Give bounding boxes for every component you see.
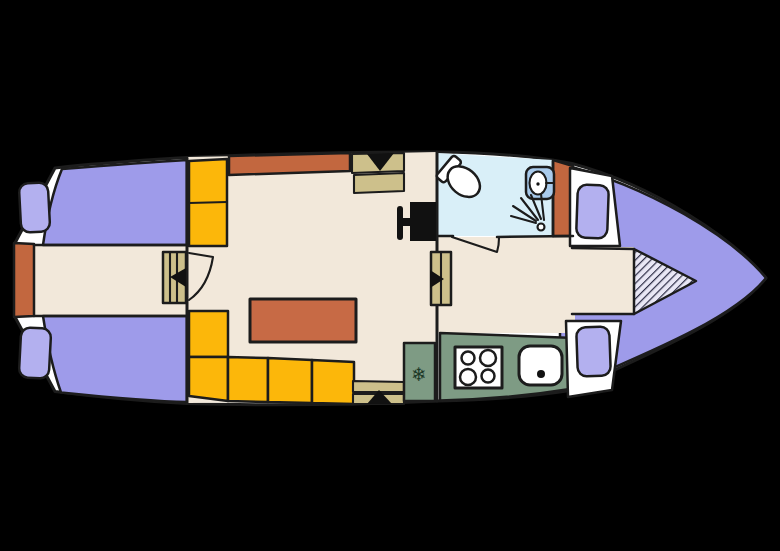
floor-plan-canvas: ❄: [0, 0, 780, 551]
fridge: ❄: [404, 343, 435, 401]
snowflake-icon: ❄: [411, 363, 427, 385]
stern-bed-top: [43, 160, 187, 245]
salon-sideboard: [229, 153, 350, 175]
salon-cabinet-divider: [189, 202, 227, 203]
bench-cell: [228, 357, 268, 402]
step-slat: [353, 381, 404, 392]
companionway-steps-bottom: [353, 381, 404, 404]
bench-cell: [189, 311, 228, 357]
helm-pedestal: [402, 218, 411, 226]
kitchen-sink: [519, 346, 562, 385]
sink-drain: [537, 370, 545, 378]
bow-pillow-top: [576, 184, 609, 238]
sink-basin: [519, 346, 562, 385]
bathroom-sink-drain: [536, 182, 539, 185]
bench-cell: [312, 360, 354, 404]
salon-table: [250, 299, 356, 342]
bow-pillow-bottom: [576, 326, 611, 376]
stern-pillow-bottom: [19, 327, 52, 379]
bow-corridor-floor-extension: [560, 247, 634, 314]
helm-console: [410, 202, 436, 241]
bench-cell: [268, 358, 312, 403]
stern-bed-bottom: [43, 316, 187, 402]
step-slat: [354, 173, 404, 193]
companionway-steps-top: [352, 153, 404, 193]
shower-drain: [538, 224, 545, 231]
cabin-door-right: [430, 252, 451, 305]
stern-steps: [14, 243, 34, 317]
stern-pillow-top: [19, 182, 51, 232]
bow-corridor-floor: [437, 237, 575, 333]
wall-bathroom-bottom-right: [497, 236, 573, 237]
boat-floor-plan: ❄: [0, 0, 780, 551]
bench-cell: [189, 357, 228, 401]
stove: [455, 347, 502, 388]
bow-corridor-wall-top: [572, 248, 634, 249]
